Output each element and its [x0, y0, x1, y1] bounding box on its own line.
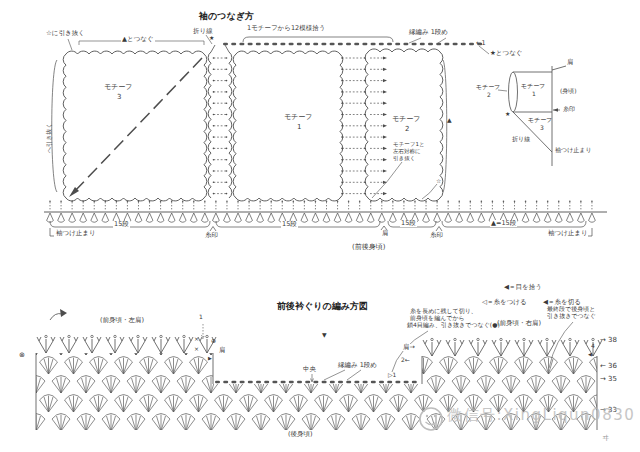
- front-right-label: (前身頃・右肩): [497, 320, 541, 327]
- edging-row1-label-bottom: 縁編み 1段め: [337, 362, 378, 369]
- dim-15a: 15段: [113, 221, 130, 228]
- back-body-label: (後身頃): [288, 431, 313, 438]
- motif2-note-2: 左右対称に: [393, 148, 421, 154]
- legend-pickup-text: ＝目を拾う: [509, 283, 542, 291]
- join-point-mark: ⊕: [211, 338, 216, 345]
- cut-arrow-center: ▼: [322, 332, 327, 339]
- diagram-canvas: [0, 0, 640, 452]
- thread-mark-b: 糸印: [430, 232, 443, 239]
- legend-attach-yarn: ◁＝糸をつける: [482, 299, 527, 306]
- star-mark: ★: [209, 35, 214, 42]
- inset-shoulder: 肩: [567, 59, 574, 66]
- inset-body: (身頃): [560, 88, 577, 95]
- inset-motif1-num: 1: [532, 91, 536, 98]
- dim-15d: ▲=15段: [490, 220, 517, 227]
- motif3-name: モチーフ: [104, 83, 133, 91]
- pickup-label: 1モチーフから12模様拾う: [247, 25, 325, 32]
- triangle-mark: ▲: [447, 117, 452, 124]
- inset-motif2-num: 2: [487, 92, 491, 99]
- pattern-page: 袖のつなぎ方 ☆に引き抜く ▲とつなぐ 折り線 ★ 1モチーフから12模様拾う …: [0, 0, 640, 452]
- inset-sleeve-stop: 袖つけ止まり: [555, 147, 592, 154]
- count1-marker: 1: [199, 314, 203, 321]
- open-star-mark: ☆: [436, 178, 441, 185]
- shoulder-right-label: 肩→: [402, 344, 416, 351]
- sleeve-stop-right: 袖つけ止まり: [548, 230, 588, 237]
- inset-motif3-name: モチーフ: [528, 117, 552, 124]
- center-label: 中央: [302, 366, 317, 373]
- inset-motif3-num: 3: [540, 125, 544, 132]
- motif3-num: 3: [117, 93, 121, 101]
- watermark: 微信号:XingLiqun0830: [447, 407, 635, 424]
- legend-attach-text: ＝糸をつける: [487, 298, 527, 306]
- dim-15b: 15段: [281, 221, 298, 228]
- row-number-38: → 38: [600, 336, 617, 344]
- thread-mark-a: 糸印: [205, 232, 218, 239]
- motif1-name: モチーフ: [284, 113, 313, 121]
- side-rotated-note: へ引き抜く: [46, 123, 53, 153]
- motif2-name: モチーフ: [392, 115, 421, 123]
- shoulder-left-label: 肩: [218, 347, 227, 354]
- bottom-title: 前後衿ぐりの編み方図: [277, 301, 368, 311]
- cut-arrow-left-step: ▶: [208, 356, 212, 362]
- row1-arrow: ←1: [476, 40, 486, 47]
- body-note: (前後身頃): [352, 243, 385, 251]
- row-number-35: → 35: [600, 375, 617, 383]
- inset-star: ★: [505, 111, 510, 118]
- dim-15c: 15段: [400, 220, 417, 227]
- inset-thread-mark: 糸印: [563, 106, 575, 113]
- motif1-num: 1: [297, 123, 301, 131]
- cut-arrow-right-edge: ◀: [588, 352, 592, 358]
- row1-start-marker: ▷1: [387, 372, 397, 379]
- note-cut-line3: 鎖4目編み、引き抜きでつなぐ(●): [407, 322, 500, 329]
- slip-star-label: ☆に引き抜く: [46, 30, 85, 37]
- sleeve-stop-left: 袖つけ止まり: [56, 230, 96, 237]
- front-left-label: (前身頃・左肩): [100, 317, 144, 324]
- motif2-note-1: モチーフ1と: [393, 141, 425, 147]
- corner-mark: ヰ: [602, 434, 609, 442]
- legend-pickup: ◀＝目を拾う: [504, 284, 542, 291]
- row-number-36: ← 36: [600, 362, 617, 370]
- join-triangle-label: ▲とつなぐ: [121, 36, 155, 43]
- inset-motif2-name: モチーフ: [476, 84, 500, 91]
- edging-row1-label: 縁編み 1段め: [409, 29, 448, 36]
- note-join-line2: 引き抜きでつなぐ: [547, 313, 596, 320]
- x-mark-1: ×: [194, 336, 199, 343]
- shoulder-dim: 肩: [382, 230, 389, 237]
- chain4-count: 4: [591, 343, 595, 350]
- inset-fold-line: 折り線: [512, 136, 530, 143]
- join-star-label: ★とつなぐ: [490, 50, 522, 57]
- top-title: 袖のつなぎ方: [199, 11, 254, 21]
- inset-motif1-name: モチーフ: [521, 83, 545, 90]
- motif2-num: 2: [405, 125, 409, 133]
- motif2-note-3: 引き抜く: [393, 155, 415, 161]
- row2-marker: 2←: [400, 357, 411, 364]
- x-mark-2: ×: [194, 346, 199, 353]
- start-ring-mark: ⊗: [19, 351, 25, 359]
